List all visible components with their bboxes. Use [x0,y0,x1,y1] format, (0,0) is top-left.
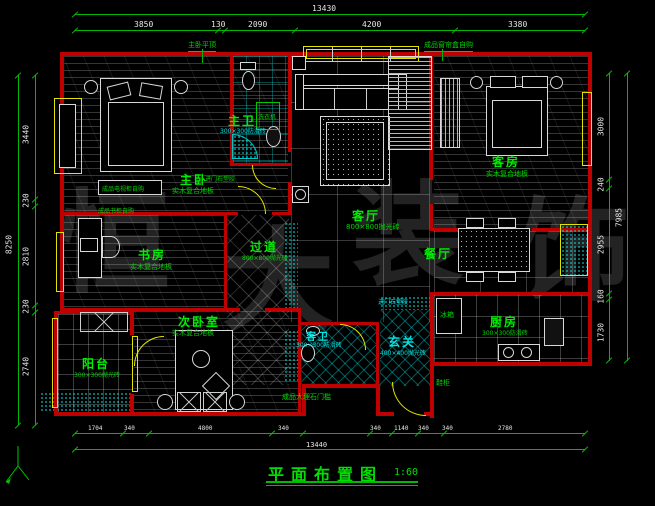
dim-tick [582,27,588,33]
bed-blanket [108,102,164,166]
dim-left-seg: 230 [22,292,31,322]
sofa-seat [303,88,399,110]
dim-line [75,14,585,15]
wall-segment [434,292,592,295]
wall-segment [376,322,379,386]
drawing-scale: 1:60 [394,467,418,478]
dim-tick [582,446,588,452]
annotation-threshold-marble: 成品大理石门槛 [282,392,331,402]
dim-top-seg: 4200 [362,20,381,29]
dim-line [18,75,19,425]
annotation-shoe-cabinet: 鞋柜 [436,378,450,388]
dim-tick [15,422,21,428]
dim-top-total: 13430 [312,4,336,13]
dim-bottom-seg: 340 [418,425,429,432]
dim-top-seg: 3850 [134,20,153,29]
dim-right-seg: 3000 [597,112,606,142]
dim-left-total: 8250 [5,230,14,260]
dim-bottom-seg: 1140 [394,425,408,432]
plant-icon [295,189,306,200]
room-material-guodao: 800×800抛光砖 [242,253,288,262]
dim-line [75,433,585,434]
dresser-xbox [177,392,201,412]
pillow [490,76,516,88]
room-material-ciwoshi: 实木复合地板 [172,328,214,338]
room-material-xuanguan: 400×400抛光砖 [380,348,426,357]
wall-segment [288,52,291,152]
nightstand-lamp [470,76,483,89]
dining-chair [498,218,516,228]
dim-bottom-seg: 2780 [498,425,512,432]
wall-segment [130,394,134,414]
dining-table [458,228,530,272]
dim-right-seg: 160 [597,282,606,312]
wall-segment [430,292,434,418]
window-seat [59,104,76,168]
fridge-label: 冰箱 [440,310,454,320]
threshold-strip [284,330,298,382]
wall-segment [272,212,291,215]
bed-blanket [492,100,542,148]
kitchen-sink [544,318,564,346]
room-label-canting: 餐厅 [424,245,452,262]
nightstand-lamp [550,76,563,89]
sofa-divider [334,89,335,109]
dim-bottom-seg: 340 [124,425,135,432]
window [52,318,58,408]
room-material-kewei: 300×300防滑砖 [296,340,342,349]
dim-line [75,449,585,450]
sofa-divider [366,89,367,109]
window-seat-dining [560,224,588,276]
dim-bottom-seg: 1704 [88,425,102,432]
dresser-xbox [203,392,227,412]
annotation-curtain-box: 成品窗帘盒自购 [424,40,473,52]
tv-cabinet-label: 成品电视柜自购 [102,184,144,193]
washer-label: 洗衣机 [258,112,276,121]
dim-tick [606,357,612,363]
wardrobe-hatch [440,78,460,148]
pillow [522,76,548,88]
room-material-zhuwei: 300×300防滑砖 [220,126,266,135]
dining-chair [466,218,484,228]
toilet-bowl [242,71,255,90]
nightstand-lamp [84,80,98,94]
leader-line [202,49,203,63]
dim-left-seg: 230 [22,186,31,216]
door-arc-entry [392,382,426,416]
dim-line [609,73,610,361]
room-label-shufang: 书房 [138,246,166,263]
annotation-threshold: 进门石塑胶 [378,297,408,306]
dining-chair [466,272,484,282]
dim-bottom-seg: 340 [370,425,381,432]
window [582,92,592,166]
room-material-zhuwo: 实木复合地板 [172,186,214,196]
floorplan-canvas: 恒 大 装 饰 [0,0,655,506]
annotation-threshold: 进门石塑胶 [205,174,235,183]
dim-line [75,30,585,31]
room-material-yangtai: 300×300抛光砖 [74,370,120,379]
wall-segment [298,322,379,325]
desk-chair [102,236,120,258]
dim-top-seg: 2090 [248,20,267,29]
window [56,232,64,292]
axis-y-icon [2,440,36,486]
wall-segment [380,412,394,416]
title-underline [266,485,418,486]
dim-tick [624,357,630,363]
burner [521,347,532,358]
dim-right-seg: 1730 [597,318,606,348]
dim-left-seg: 3440 [22,120,31,150]
plant-box [292,56,306,70]
wall-segment [288,182,291,215]
rug-inner [326,122,384,180]
leader-line [442,49,443,61]
window-mullion [332,47,333,61]
threshold-strip [284,222,298,308]
room-material-shufang: 实木复合地板 [130,262,172,272]
room-material-chufang: 300×300防滑砖 [482,328,528,337]
dim-right-seg: 2955 [597,230,606,260]
wall-segment [302,384,380,388]
dim-line [627,73,628,361]
room-material-keting: 800×800抛光砖 [346,222,400,232]
wall-segment [54,412,306,416]
dim-left-seg: 2740 [22,352,31,382]
dim-bottom-total: 13440 [306,441,327,449]
dim-tick [32,422,38,428]
dining-chair [498,272,516,282]
dim-right-seg: 240 [597,170,606,200]
dim-bottom-seg: 4800 [198,425,212,432]
wall-segment [265,308,301,311]
dim-right-total: 7985 [615,203,624,233]
dim-line [35,75,36,425]
cabinet-xbox [80,312,128,332]
bed-swirl [192,350,210,368]
wall-segment [224,215,227,311]
dim-left-seg: 2810 [22,242,31,272]
wall-segment [60,308,240,311]
room-label-kefang: 客房 [492,153,520,170]
wall-segment [60,212,238,215]
window-mullion [361,47,362,61]
dim-tick [582,11,588,17]
wall-segment [430,362,592,366]
stool [157,394,173,410]
dim-top-seg: 130 [211,20,225,29]
wall-segment [430,204,433,231]
wall-segment [130,311,134,335]
dim-top-seg: 3380 [508,20,527,29]
desk-monitor [80,238,98,252]
burner [503,347,514,358]
room-material-kefang: 实木复合地板 [486,169,528,179]
toilet-tank [240,62,256,70]
cabinet-hatch [388,56,432,150]
stool [229,394,245,410]
nightstand-lamp [174,80,188,94]
dim-tick [582,430,588,436]
title-underline [266,481,418,483]
dim-bottom-seg: 340 [278,425,289,432]
dim-bottom-seg: 340 [442,425,453,432]
sofa-armrest [295,74,304,110]
annotation-bookcase: 成品书柜自购 [98,206,134,215]
sofa-back [303,74,399,86]
